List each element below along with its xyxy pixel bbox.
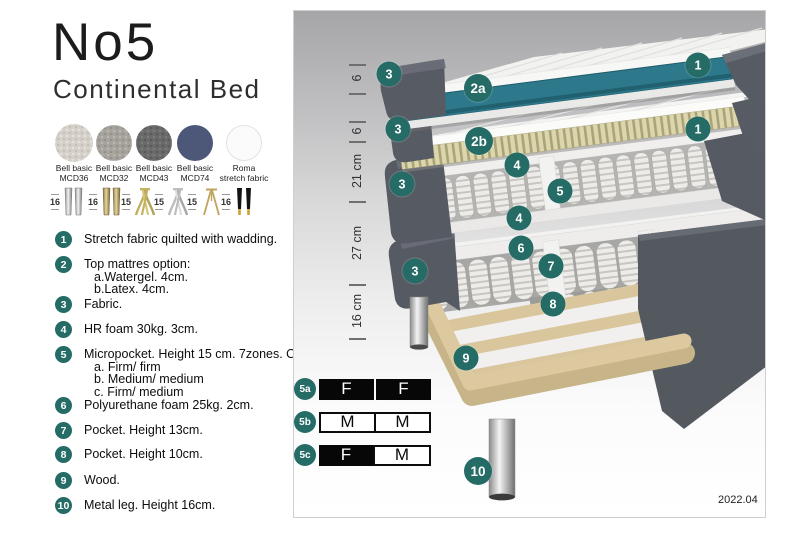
callout-1-top: 1 xyxy=(686,53,711,78)
ruler-label: 6 xyxy=(350,128,364,135)
leg-splayed-gold-icon xyxy=(134,187,156,217)
callout-4-hrfoam: 4 xyxy=(507,206,532,231)
feature-text: Metal leg. Height 16cm. xyxy=(84,499,215,512)
leg-option-cylinder-silver: 16 xyxy=(50,185,85,219)
ruler-label: 6 xyxy=(350,75,364,82)
feature-text: Fabric. xyxy=(84,298,122,311)
feature-text: Stretch fabric quilted with wadding. xyxy=(84,233,277,246)
feature-number-badge: 3 xyxy=(55,296,72,313)
feature-text: Pocket. Height 13cm. xyxy=(84,424,203,437)
leg-height-label: 15 xyxy=(121,197,131,207)
product-sheet: No5 Continental Bed Bell basicMCD36 Bell… xyxy=(0,0,800,533)
leg-splayed-silver-icon xyxy=(167,187,189,217)
ruler-tick xyxy=(349,338,366,340)
callout-6-pufoam: 6 xyxy=(509,236,534,261)
firmness-cell: F xyxy=(376,379,431,400)
page-subtitle: Continental Bed xyxy=(53,74,261,105)
leg-option-hairpin-gold: 15 xyxy=(187,185,224,219)
firmness-row-5c: 5c F M xyxy=(294,444,431,466)
feature-number-badge: 9 xyxy=(55,472,72,489)
leg-option-splayed-silver: 15 xyxy=(154,185,189,219)
leg-height-label: 15 xyxy=(154,197,164,207)
leg-option-splayed-gold: 15 xyxy=(121,185,156,219)
feature-item-6: 6 Polyurethane foam 25kg. 2cm. xyxy=(55,397,254,414)
fabric-swatch-roma xyxy=(226,125,262,161)
feature-item-2: 2 Top mattres option: a.Watergel. 4cm. b… xyxy=(55,256,190,296)
leg-option-cylinder-brass: 16 xyxy=(88,185,123,219)
feature-number-badge: 1 xyxy=(55,231,72,248)
version-label: 2022.04 xyxy=(718,494,758,506)
ruler-tick xyxy=(349,141,366,143)
swatch-label: Romastretch fabric xyxy=(213,163,275,183)
feature-number-badge: 5 xyxy=(55,346,72,363)
feature-subtext: b. Medium/ medium xyxy=(94,373,326,385)
bed-diagram-panel: 6 6 21 cm 27 cm 16 cm 1 3 2a 1 3 2b 4 5 … xyxy=(293,10,766,518)
feature-item-7: 7 Pocket. Height 13cm. xyxy=(55,422,203,439)
feature-item-10: 10 Metal leg. Height 16cm. xyxy=(55,497,215,514)
feature-text: Wood. xyxy=(84,474,120,487)
callout-1-sheet: 1 xyxy=(686,117,711,142)
ruler-tick xyxy=(349,201,366,203)
feature-item-9: 9 Wood. xyxy=(55,472,120,489)
callout-3-fabric: 3 xyxy=(390,172,415,197)
callout-2a-watergel: 2a xyxy=(464,74,492,102)
firmness-cell: F xyxy=(319,379,374,400)
callout-7-pocket13: 7 xyxy=(539,254,564,279)
feature-text: Pocket. Height 10cm. xyxy=(84,448,203,461)
feature-text: Polyurethane foam 25kg. 2cm. xyxy=(84,399,254,412)
feature-number-badge: 10 xyxy=(55,497,72,514)
leg-height-label: 16 xyxy=(221,197,231,207)
firmness-cell: M xyxy=(373,445,431,466)
box-side-fabric xyxy=(638,219,766,429)
ruler-label: 21 cm xyxy=(350,154,364,188)
ruler-label: 16 cm xyxy=(350,294,364,328)
feature-item-1: 1 Stretch fabric quilted with wadding. xyxy=(55,231,277,248)
feature-text: HR foam 30kg. 3cm. xyxy=(84,323,198,336)
fabric-swatch-mcd32 xyxy=(96,125,132,161)
fabric-swatch-mcd43 xyxy=(136,125,172,161)
leg-cylinder-silver-icon xyxy=(63,187,85,217)
leg-height-label: 16 xyxy=(50,197,60,207)
feature-number-badge: 6 xyxy=(55,397,72,414)
feature-number-badge: 2 xyxy=(55,256,72,273)
callout-4-hrfoam: 4 xyxy=(505,153,530,178)
callout-3-fabric: 3 xyxy=(377,62,402,87)
feature-item-5: 5 Micropocket. Height 15 cm. 7zones. Opt… xyxy=(55,346,326,398)
ruler-tick xyxy=(349,284,366,286)
feature-number-badge: 4 xyxy=(55,321,72,338)
firmness-cell: F xyxy=(319,445,373,466)
callout-5-micropocket: 5 xyxy=(548,179,573,204)
callout-3-fabric: 3 xyxy=(386,117,411,142)
firmness-badge: 5a xyxy=(294,378,316,400)
firmness-cell: M xyxy=(376,412,431,433)
leg-height-label: 15 xyxy=(187,197,197,207)
fabric-swatch-mcd36 xyxy=(55,124,93,162)
leg-height-label: 16 xyxy=(88,197,98,207)
ruler-label: 27 cm xyxy=(350,226,364,260)
feature-item-8: 8 Pocket. Height 10cm. xyxy=(55,446,203,463)
page-title: No5 xyxy=(52,12,158,73)
feature-number-badge: 8 xyxy=(55,446,72,463)
firmness-row-5b: 5b M M xyxy=(294,411,431,433)
feature-subtext: b.Latex. 4cm. xyxy=(94,283,190,295)
firmness-cell: M xyxy=(319,412,376,433)
firmness-row-5a: 5a F F xyxy=(294,378,431,400)
ruler-tick xyxy=(349,93,366,95)
callout-8-pocket10: 8 xyxy=(541,292,566,317)
feature-item-3: 3 Fabric. xyxy=(55,296,122,313)
leg-tapered-black-icon xyxy=(234,187,256,217)
fabric-swatch-mcd74 xyxy=(177,125,213,161)
feature-number-badge: 7 xyxy=(55,422,72,439)
bed-cutaway-illustration xyxy=(294,11,766,518)
callout-10-leg: 10 xyxy=(464,457,492,485)
callout-2b-latex: 2b xyxy=(465,127,493,155)
ruler-tick xyxy=(349,121,366,123)
ruler-tick xyxy=(349,64,366,66)
callout-3-fabric: 3 xyxy=(403,259,428,284)
firmness-badge: 5b xyxy=(294,411,316,433)
firmness-badge: 5c xyxy=(294,444,316,466)
callout-9-wood: 9 xyxy=(454,346,479,371)
feature-item-4: 4 HR foam 30kg. 3cm. xyxy=(55,321,198,338)
leg-option-tapered-black: 16 xyxy=(221,185,256,219)
leg-cylinder-brass-icon xyxy=(101,187,123,217)
